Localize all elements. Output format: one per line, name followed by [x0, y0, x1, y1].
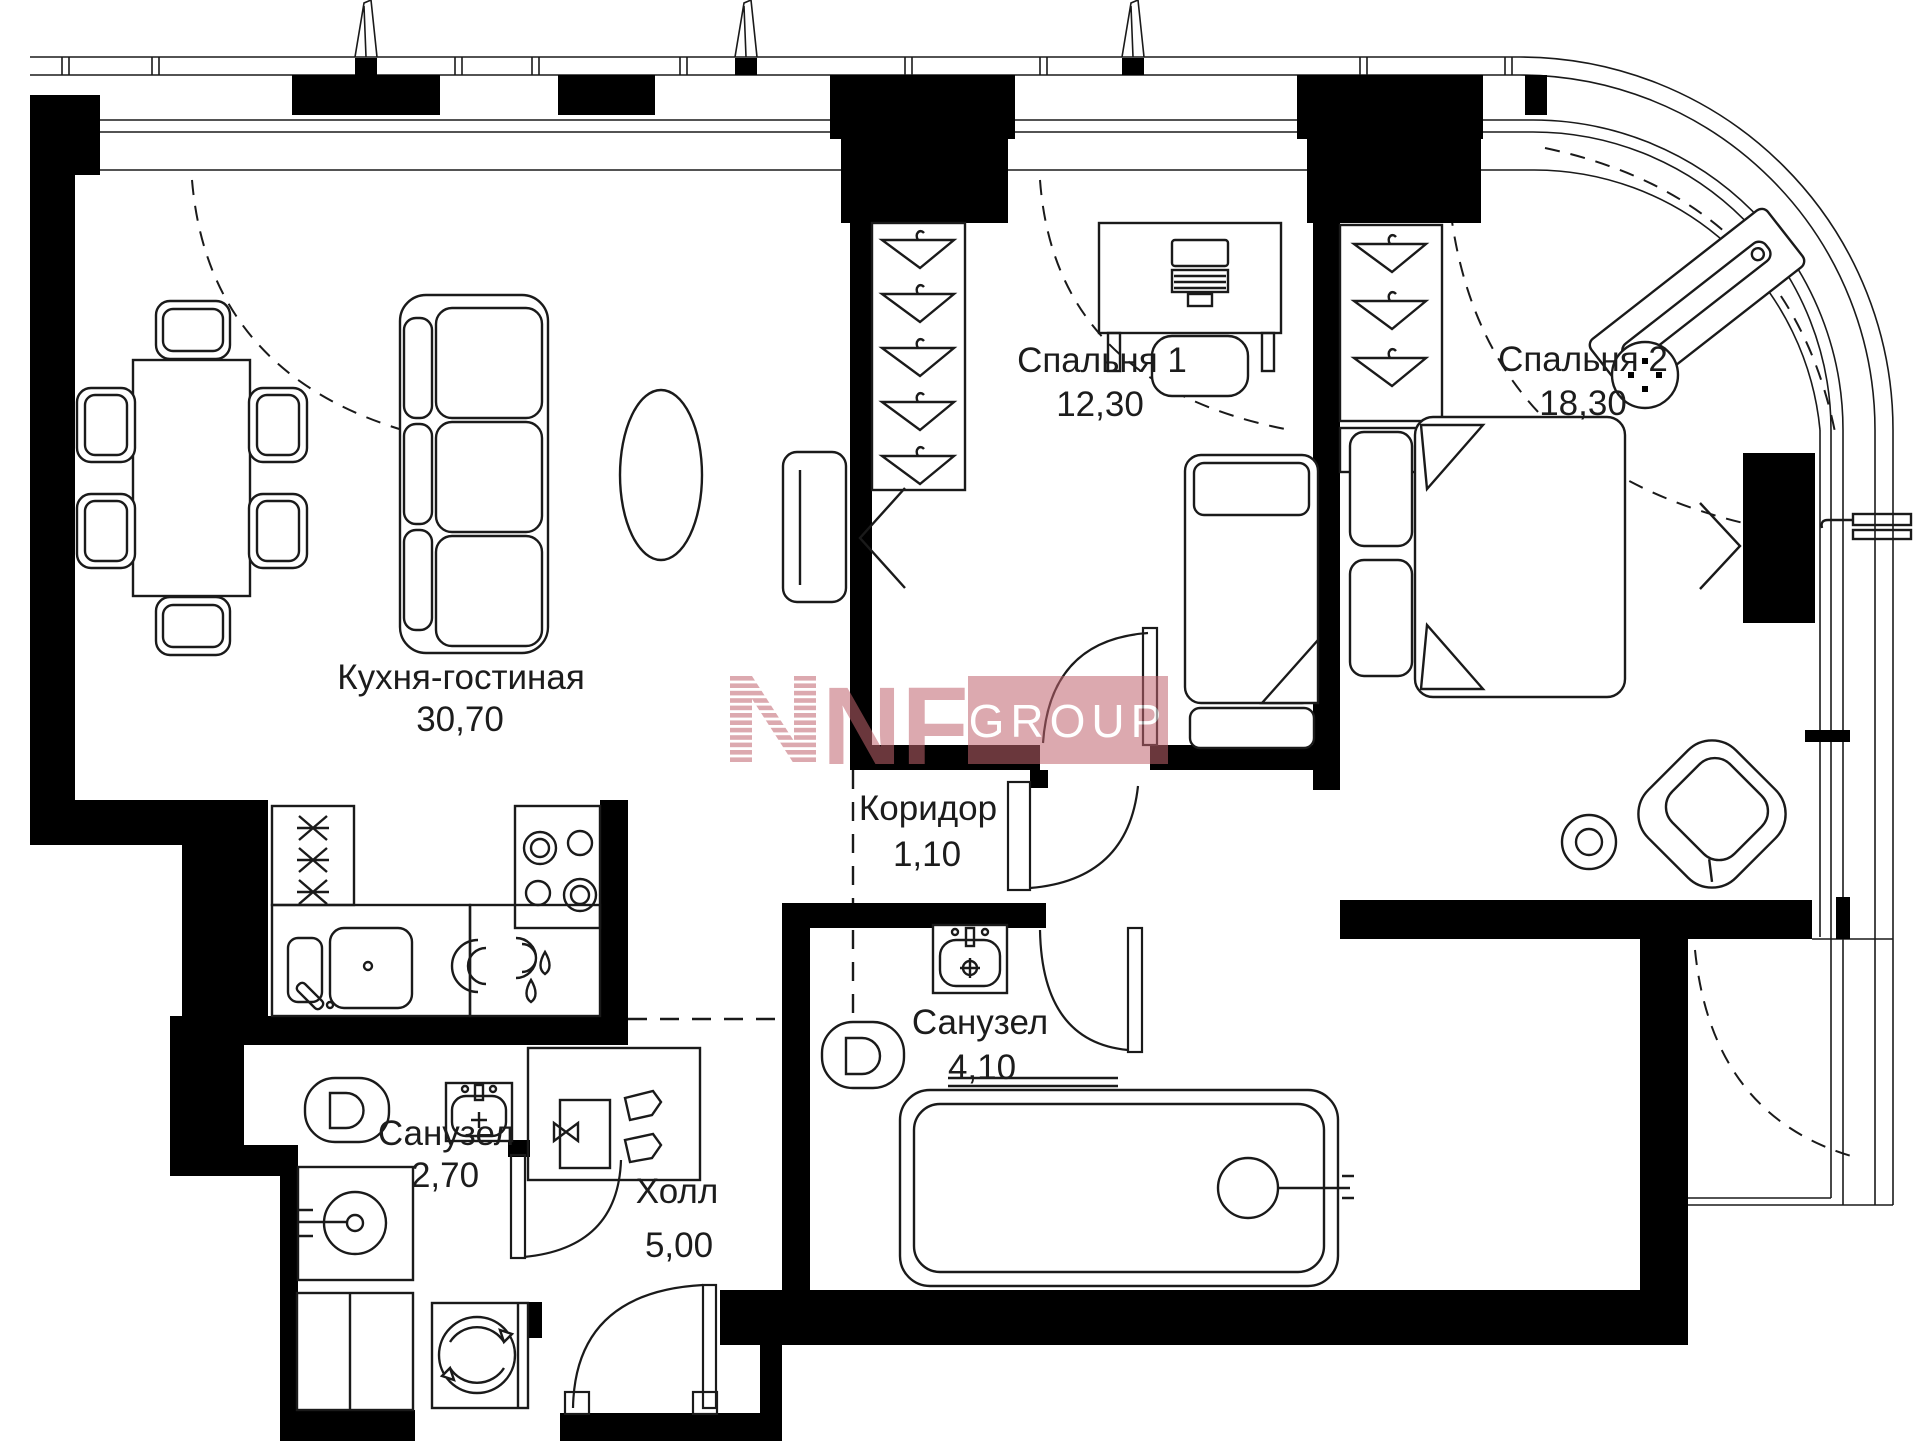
shoe-icon	[625, 1091, 661, 1120]
kitchen-sink-small	[288, 938, 322, 1002]
bed-bedroom-2	[1415, 417, 1625, 697]
floor-plan-page: Кухня-гостиная 30,70 Спальня 1 12,30 Спа…	[0, 0, 1920, 1441]
nightstand-1	[1350, 432, 1412, 546]
corridor-door	[1008, 782, 1138, 890]
sofa	[400, 295, 548, 653]
main-bathroom-door	[1040, 928, 1142, 1052]
bed-bedroom-1	[1185, 455, 1318, 748]
tv-unit	[1743, 453, 1815, 623]
bathroom-cabinet	[297, 1293, 413, 1410]
hall-wardrobe	[528, 1048, 700, 1180]
watermark-group-text: GROUP	[969, 695, 1168, 747]
label-bathroom-guest-name: Санузел	[378, 1114, 514, 1153]
bathroom-sink	[933, 925, 1007, 993]
side-table	[1562, 815, 1616, 869]
watermark-brand-text: NF	[822, 665, 969, 788]
window-sash-detail	[1822, 514, 1911, 539]
dining-table	[133, 360, 250, 596]
label-corridor-area: 1,10	[893, 835, 961, 874]
shoe-icon	[625, 1134, 661, 1162]
label-corridor-name: Коридор	[859, 789, 997, 828]
label-bathroom-main-name: Санузел	[912, 1003, 1048, 1042]
room-bedroom-2	[1340, 206, 1911, 902]
label-bedroom2-name: Спальня 2	[1498, 340, 1668, 379]
watermark-logo: NF GROUP	[726, 665, 1168, 788]
fridge	[272, 806, 354, 905]
toilet-main	[822, 1022, 904, 1088]
zone-boundary-dashes	[628, 770, 853, 1019]
wardrobe-bedroom-1	[872, 223, 965, 490]
freezer-icon	[297, 816, 329, 904]
bathtub	[900, 1078, 1354, 1286]
shower	[298, 1167, 413, 1280]
label-bedroom2-area: 18,30	[1539, 384, 1627, 423]
open-window-sash-icon	[355, 0, 1144, 57]
kitchen-cabinets	[272, 806, 600, 1016]
bed-bench	[1190, 708, 1314, 748]
label-bathroom-main-area: 4,10	[948, 1048, 1016, 1087]
label-kitchen-living-name: Кухня-гостиная	[337, 658, 585, 697]
watermark-striped-n-icon	[726, 676, 820, 762]
coffee-table	[620, 390, 702, 560]
toilet-guest	[305, 1078, 389, 1142]
label-bathroom-guest-area: 2,70	[411, 1156, 479, 1195]
mirror-icon	[554, 1123, 578, 1141]
washing-machine	[432, 1303, 528, 1408]
label-hall-name: Холл	[636, 1172, 719, 1211]
label-hall-area: 5,00	[645, 1226, 713, 1265]
label-bedroom1-area: 12,30	[1056, 385, 1144, 424]
label-bedroom1-name: Спальня 1	[1017, 341, 1187, 380]
floor-plan-drawing: Кухня-гостиная 30,70 Спальня 1 12,30 Спа…	[0, 0, 1920, 1441]
window-mullion-ticks	[62, 57, 1512, 75]
entrance-door	[565, 1285, 717, 1414]
tv-icon	[1700, 503, 1740, 589]
dish-rack-icon	[452, 938, 550, 1002]
room-bathroom-main	[822, 925, 1354, 1286]
nightstand-2	[1350, 560, 1412, 676]
tv-stand	[783, 452, 905, 602]
label-kitchen-living-area: 30,70	[416, 700, 504, 739]
armchair	[1624, 726, 1799, 901]
